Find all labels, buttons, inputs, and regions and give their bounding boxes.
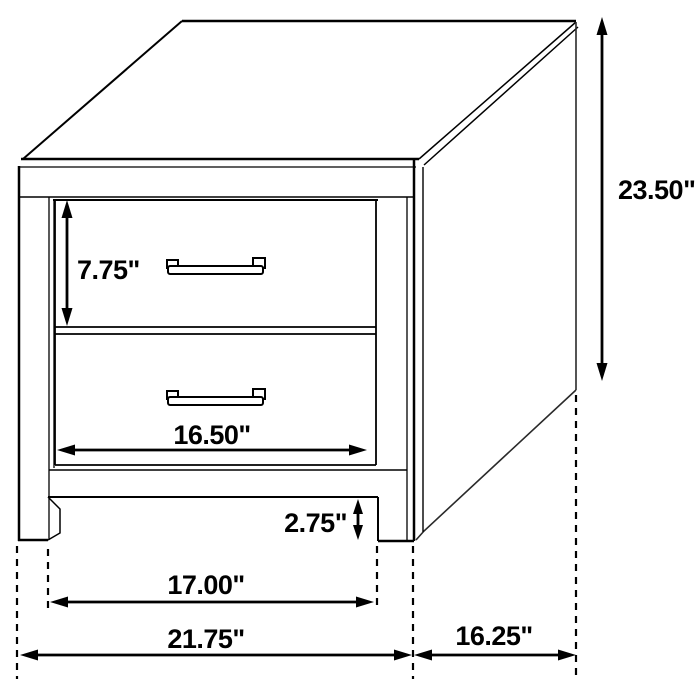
arrowhead-up-icon	[62, 200, 73, 218]
dimension-label-foot-clearance: 2.75"	[284, 508, 347, 538]
dimension-overall-height: 23.50"	[597, 17, 696, 381]
tabletop	[20, 21, 578, 167]
arrowhead-right-icon	[356, 597, 374, 608]
dimension-top-drawer-height: 7.75"	[62, 200, 140, 326]
dimension-leg-span: 17.00"	[50, 570, 374, 608]
top-handle-bar	[168, 266, 263, 274]
bottom-handle-bar	[168, 397, 263, 405]
tabletop-left-edge	[23, 21, 182, 159]
bottom-drawer-handle	[167, 389, 265, 405]
dimension-label-top-drawer-height: 7.75"	[77, 255, 140, 285]
dimension-label-overall-width: 21.75"	[167, 624, 244, 654]
dimension-label-overall-depth: 16.25"	[455, 621, 532, 651]
arrowhead-left-icon	[414, 650, 432, 661]
arrowhead-right-icon	[394, 650, 412, 661]
dimension-overall-depth: 16.25"	[414, 621, 576, 661]
arrowhead-down-icon	[353, 525, 363, 540]
diagram-canvas: 7.75" 16.50" 2.75" 17.00" 21.75" 16.25"	[0, 0, 700, 700]
dimension-label-leg-span: 17.00"	[167, 570, 244, 600]
left-leg-inner-face	[48, 497, 60, 540]
arrowhead-left-icon	[20, 650, 38, 661]
nightstand-dimension-diagram: 7.75" 16.50" 2.75" 17.00" 21.75" 16.25"	[0, 0, 700, 700]
arrowhead-down-icon	[597, 363, 608, 381]
side-panel-bottom-edge	[416, 390, 576, 540]
dimension-overall-width: 21.75"	[20, 624, 412, 661]
dimension-label-overall-height: 23.50"	[618, 175, 695, 205]
tabletop-bevel-outer	[419, 22, 576, 159]
arrowhead-down-icon	[62, 308, 73, 326]
arrowhead-right-icon	[558, 650, 576, 661]
dimension-label-drawer-front-width: 16.50"	[173, 420, 250, 450]
arrowhead-left-icon	[57, 445, 75, 456]
tabletop-bevel-inner	[424, 27, 578, 165]
dimension-foot-clearance: 2.75"	[284, 499, 363, 540]
dimension-drawer-front-width: 16.50"	[57, 420, 367, 456]
arrowhead-up-icon	[597, 17, 608, 35]
arrowhead-right-icon	[349, 445, 367, 456]
top-drawer-handle	[167, 258, 265, 274]
legs	[18, 497, 414, 541]
arrowhead-left-icon	[50, 597, 68, 608]
front-frame	[19, 160, 414, 541]
arrowhead-up-icon	[353, 499, 363, 514]
